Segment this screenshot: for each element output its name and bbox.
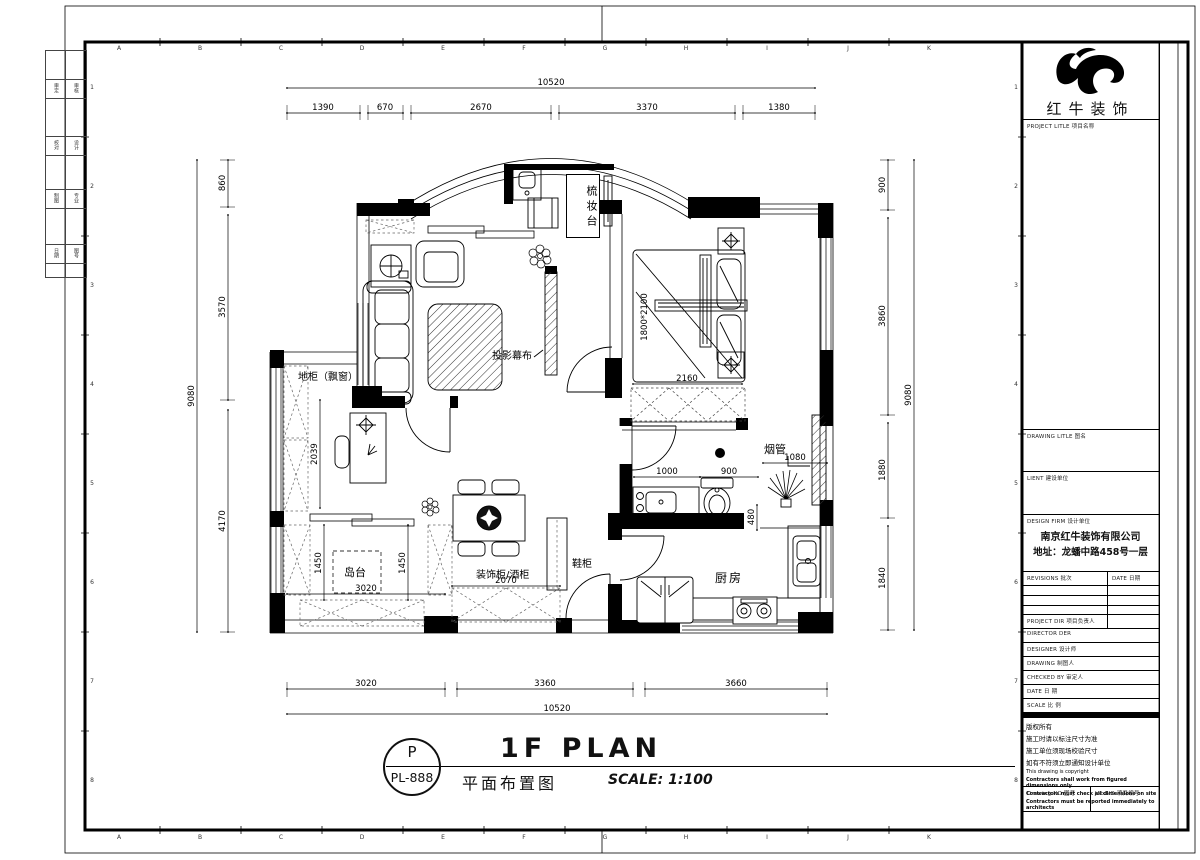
svg-text:3370: 3370 <box>636 103 658 113</box>
title-block: 红牛装饰 PROJECT LITLE 项目名称 DRAWING LITLE 图名… <box>1022 42 1160 830</box>
plan-tag-circle: P PL-888 <box>383 738 441 796</box>
svg-text:9080: 9080 <box>187 385 197 407</box>
field-date-col: DATE 日期 <box>1112 574 1140 582</box>
armchair <box>416 241 464 287</box>
plan-tag-letter: P <box>385 743 439 761</box>
projection-screen-label: 投影幕布 <box>492 347 532 362</box>
bed <box>633 250 747 382</box>
grid-letter: G <box>600 45 610 52</box>
field-client: LIENT 建设单位 <box>1027 474 1068 482</box>
deco-wine-cabinet-label: 装饰柜/酒柜 <box>476 566 529 581</box>
grid-letter: J <box>843 834 853 841</box>
field-designer: DESIGNER 设计师 <box>1027 645 1076 653</box>
revision-row <box>1022 596 1159 606</box>
dining-table <box>453 480 525 556</box>
revision-row <box>1022 606 1159 615</box>
design-firm-address: 地址：龙蟠中路458号一层 <box>1022 544 1159 558</box>
grid-number: 1 <box>1012 84 1020 91</box>
grid-number: 2 <box>1012 183 1020 190</box>
stamp-cell: 图号 <box>66 244 86 262</box>
field-design-firm: DESIGN FIRM 设计单位 <box>1027 517 1090 525</box>
svg-text:9080: 9080 <box>904 384 914 406</box>
grid-letter: B <box>195 834 205 841</box>
svg-text:2160: 2160 <box>676 374 698 384</box>
svg-text:10520: 10520 <box>537 78 564 88</box>
grid-letter: D <box>357 834 367 841</box>
grid-letter: D <box>357 45 367 52</box>
island-label: 岛台 <box>344 564 366 580</box>
grid-letter: J <box>843 45 853 52</box>
grid-number: 3 <box>88 282 96 289</box>
floor-plan-drawing: 10520 1390 670 2670 3370 1380 3020 3360 … <box>0 0 1200 860</box>
stamp-cell: 专业 <box>66 189 86 207</box>
field-project-title: PROJECT LITLE 项目名称 <box>1027 122 1094 130</box>
field-scale: SCALE 比 例 <box>1027 701 1061 709</box>
window-cabinet-label: 地柜（飘窗） <box>298 368 358 383</box>
copyright-line: 施工单位须现场校验尺寸 <box>1026 745 1159 755</box>
grid-number: 5 <box>88 480 96 487</box>
svg-text:1450: 1450 <box>398 552 408 574</box>
copyright-line: 如有不符须立即通知设计单位 <box>1026 757 1159 767</box>
copyright-line: 版权所有 <box>1026 721 1159 731</box>
plan-title-en: 1F PLAN <box>500 733 662 764</box>
stamp-strip: 审定 审核 校对 设计 制图 专业 日期 图号 <box>45 50 87 278</box>
field-drawing-no: Drawing NO 图号 <box>1027 789 1075 797</box>
plan-scale: SCALE: 1:100 <box>608 772 713 788</box>
svg-text:3020: 3020 <box>355 679 377 689</box>
shoe-cabinet <box>547 518 567 590</box>
svg-text:2039: 2039 <box>310 443 320 465</box>
grid-number: 4 <box>1012 381 1020 388</box>
field-drawing: DRAWING 制图人 <box>1027 659 1074 667</box>
stamp-cell: 日期 <box>46 244 66 262</box>
svg-text:2670: 2670 <box>470 103 492 113</box>
grid-letter: A <box>114 45 124 52</box>
svg-text:860: 860 <box>218 175 228 191</box>
plan-tag-number: PL-888 <box>385 770 439 785</box>
design-firm-name: 南京红牛装饰有限公司 <box>1022 528 1159 543</box>
svg-text:1840: 1840 <box>878 567 888 589</box>
grid-letter: I <box>762 45 772 52</box>
copyright-line: 施工时请以标注尺寸为准 <box>1026 733 1159 743</box>
grid-letter: K <box>924 45 934 52</box>
desk <box>335 413 386 483</box>
brand-name: 红牛装饰 <box>1022 98 1159 119</box>
field-project-dir: PROJECT DIR 项目负责人 <box>1027 617 1095 625</box>
svg-text:1880: 1880 <box>878 459 888 481</box>
stamp-cell: 校对 <box>46 136 66 154</box>
rug <box>428 304 502 390</box>
field-date: DATE 日 期 <box>1027 687 1057 695</box>
field-job-no: Job NO 项目编号 <box>1095 789 1140 797</box>
grid-letter: C <box>276 834 286 841</box>
grid-number: 8 <box>88 777 96 784</box>
grid-number: 7 <box>88 678 96 685</box>
stamp-cell: 设计 <box>66 136 86 154</box>
kitchen-label: 厨房 <box>715 569 743 586</box>
grid-number: 2 <box>88 183 96 190</box>
flue-label: 烟管 <box>764 441 786 457</box>
grid-letter: B <box>195 45 205 52</box>
grid-letter: F <box>519 834 529 841</box>
field-director: DIRECTOR DER <box>1027 631 1071 637</box>
stamp-cell: 审核 <box>66 79 86 97</box>
grid-number: 1 <box>88 84 96 91</box>
grid-number: 3 <box>1012 282 1020 289</box>
grid-letter: G <box>600 834 610 841</box>
svg-text:3020: 3020 <box>355 584 377 594</box>
stamp-cell: 制图 <box>46 189 66 207</box>
grid-letter: C <box>276 45 286 52</box>
shoe-cabinet-label: 鞋柜 <box>572 555 592 570</box>
projection-screen <box>534 272 557 375</box>
grid-number: 4 <box>88 381 96 388</box>
revision-row <box>1022 586 1159 596</box>
svg-text:1080: 1080 <box>784 453 806 463</box>
grid-letter: E <box>438 834 448 841</box>
svg-text:670: 670 <box>377 103 393 113</box>
stamp-cell: 审定 <box>46 79 66 97</box>
grid-number: 5 <box>1012 480 1020 487</box>
field-checked-by: CHECKED BY 审定人 <box>1027 673 1083 681</box>
grid-letter: A <box>114 834 124 841</box>
brand-logo-icon <box>1050 46 1130 98</box>
svg-text:3570: 3570 <box>218 296 228 318</box>
svg-text:480: 480 <box>747 509 757 525</box>
grid-number: 8 <box>1012 777 1020 784</box>
grid-letter: E <box>438 45 448 52</box>
svg-text:1000: 1000 <box>656 467 678 477</box>
svg-text:900: 900 <box>878 177 888 193</box>
grid-number: 6 <box>88 579 96 586</box>
title-rule <box>386 766 1015 767</box>
walls-solid <box>270 164 833 633</box>
svg-text:3860: 3860 <box>878 305 888 327</box>
svg-text:3660: 3660 <box>725 679 747 689</box>
grid-letter: I <box>762 834 772 841</box>
grid-letter: H <box>681 834 691 841</box>
plan-title-cn: 平面布置图 <box>462 770 557 794</box>
grid-letter: K <box>924 834 934 841</box>
grid-number: 7 <box>1012 678 1020 685</box>
drawing-sheet: 10520 1390 670 2670 3370 1380 3020 3360 … <box>0 0 1200 860</box>
grid-letter: F <box>519 45 529 52</box>
svg-text:4170: 4170 <box>218 510 228 532</box>
sofa <box>363 281 413 404</box>
svg-text:1390: 1390 <box>312 103 334 113</box>
copyright-line: This drawing is copyright <box>1026 769 1159 775</box>
svg-text:3360: 3360 <box>534 679 556 689</box>
svg-text:1380: 1380 <box>768 103 790 113</box>
grid-letter: H <box>681 45 691 52</box>
svg-text:900: 900 <box>721 467 737 477</box>
svg-text:1450: 1450 <box>314 552 324 574</box>
bed-size-label: 1800*2100 <box>640 293 650 341</box>
svg-text:10520: 10520 <box>543 704 570 714</box>
field-revisions: REVISIONS 批次 <box>1027 574 1072 582</box>
field-drawing-title: DRAWING LITLE 图名 <box>1027 432 1086 440</box>
grid-number: 6 <box>1012 579 1020 586</box>
dressing-table-label: 梳妆台 <box>566 174 600 238</box>
